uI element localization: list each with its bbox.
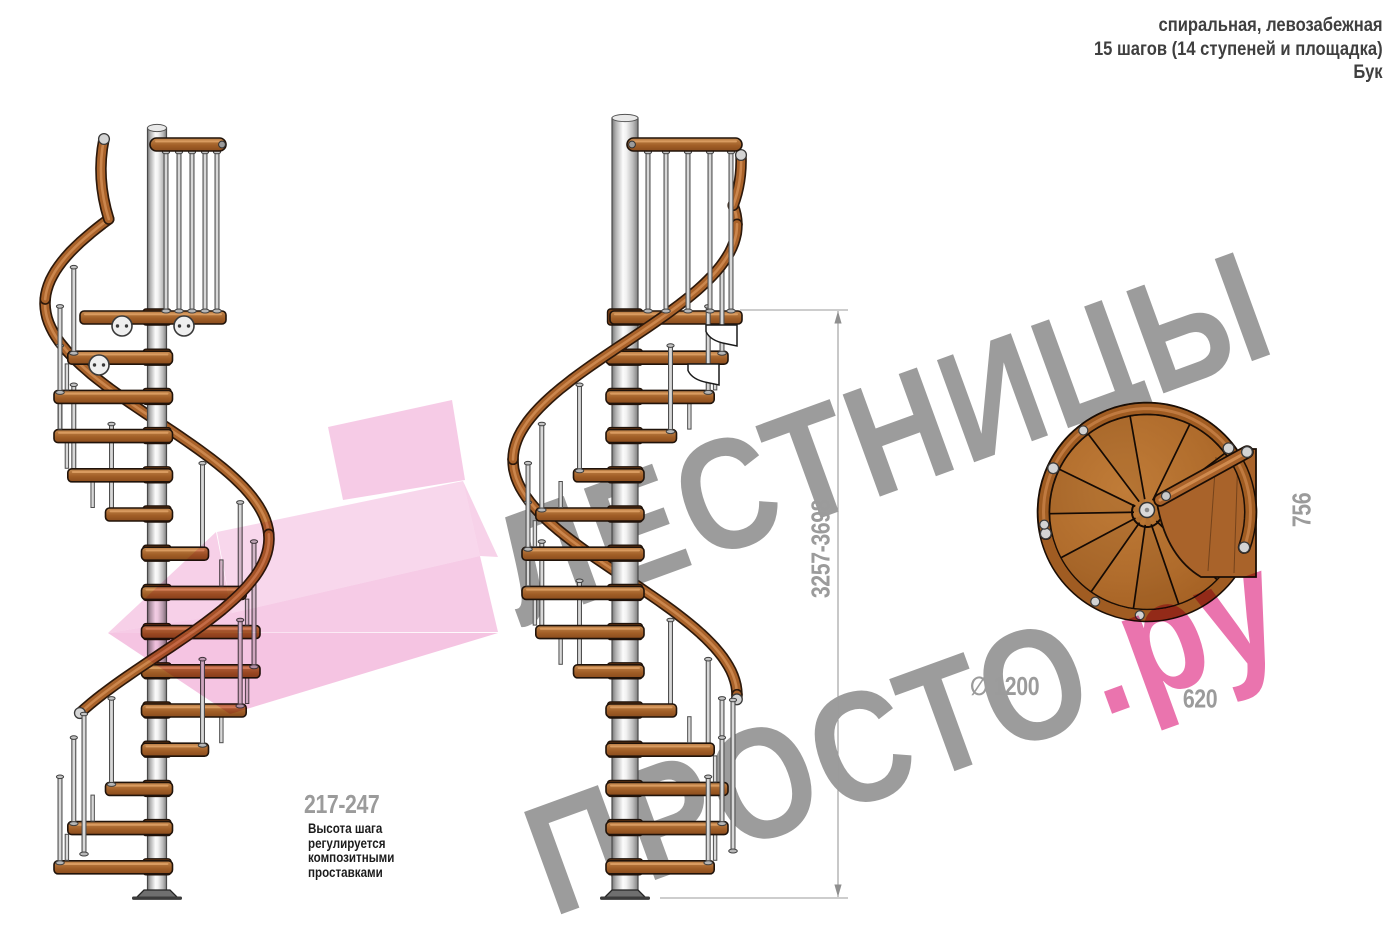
dimension-landing-depth-label: 756: [1287, 493, 1318, 527]
dimension-total-height-label: 3257-3698: [806, 500, 837, 598]
technical-drawing: [0, 0, 1400, 948]
top-plan-view: [1038, 403, 1256, 621]
dimension-landing-width-label: 620: [1183, 684, 1217, 715]
center-side-view-landing-railing: [627, 138, 742, 313]
center-side-view-end-baluster: [729, 698, 738, 853]
dimension-step-height-label: 217-247: [304, 789, 379, 820]
spec-header: спиральная, левозабежная 15 шагов (14 ст…: [1094, 14, 1383, 85]
step-height-note: Высота шага регулируется композитными пр…: [308, 822, 394, 880]
drawing-sheet: ЛЕСТНИЦЫ ПРОСТО.ру 3257-3698 217-247 756…: [0, 0, 1400, 948]
left-side-view: [45, 124, 269, 900]
spec-line-steps: 15 шагов (14 ступеней и площадка): [1094, 38, 1383, 62]
dimension-diameter-label: ∅ 1200: [970, 671, 1039, 702]
spec-line-material: Бук: [1094, 61, 1383, 85]
center-side-view: [513, 114, 746, 900]
spec-line-type: спиральная, левозабежная: [1094, 14, 1383, 38]
left-view-mount-discs: [89, 316, 194, 375]
